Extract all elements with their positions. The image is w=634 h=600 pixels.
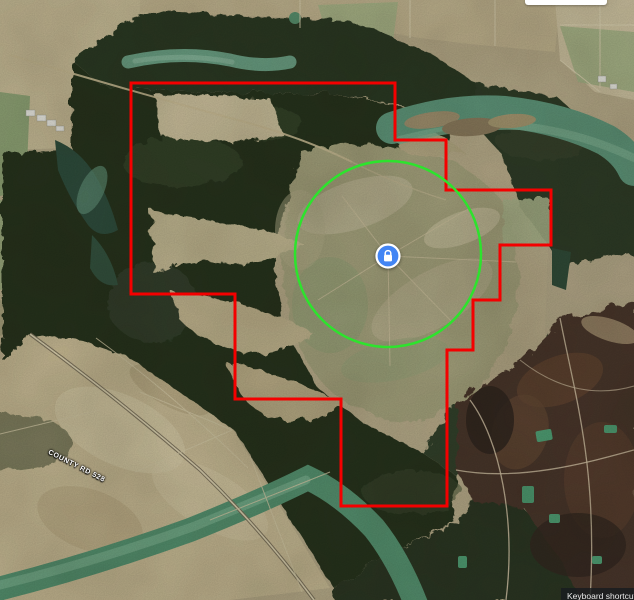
cropped-ui-element (525, 0, 607, 5)
image-grain (0, 0, 634, 600)
satellite-imagery[interactable] (0, 0, 634, 600)
property-marker[interactable] (375, 243, 401, 269)
keyboard-shortcuts-button[interactable]: Keyboard shortcuts (561, 588, 634, 600)
satellite-map[interactable]: COUNTY RD 528 Keyboard shortcuts (0, 0, 634, 600)
